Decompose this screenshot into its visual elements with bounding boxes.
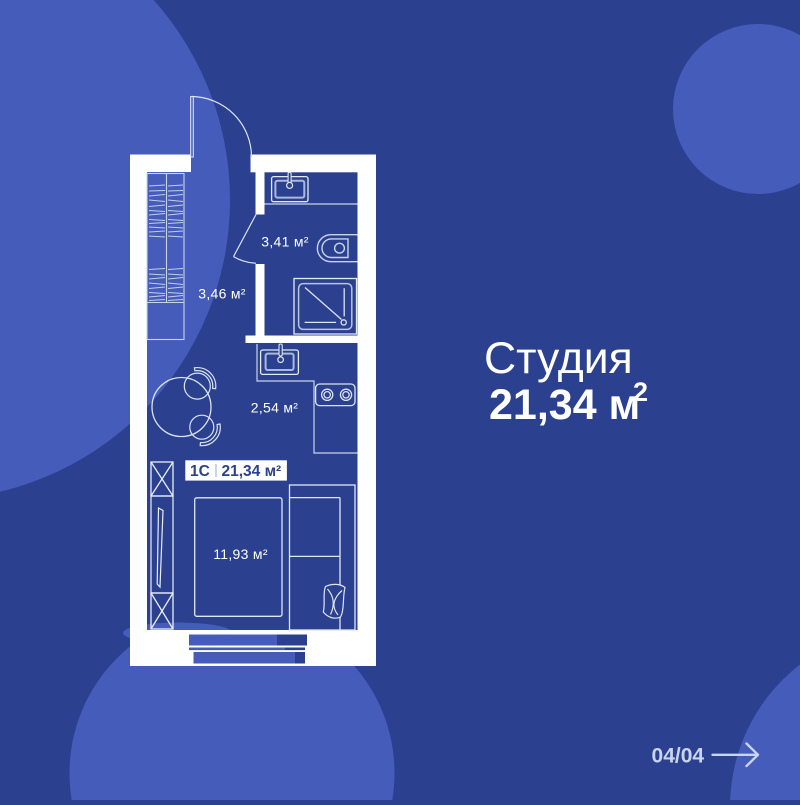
svg-text:04/04: 04/04 [652,745,705,768]
svg-text:3,41 м²: 3,41 м² [261,234,309,250]
svg-text:Студия: Студия [484,334,633,383]
svg-text:11,93 м²: 11,93 м² [213,546,268,562]
svg-text:2: 2 [633,377,648,407]
svg-text:21,34 м: 21,34 м [489,381,640,429]
svg-text:1C: 1C [190,463,210,480]
svg-text:2,54 м²: 2,54 м² [251,400,299,416]
svg-text:3,46 м²: 3,46 м² [198,286,246,302]
svg-text:21,34 м²: 21,34 м² [222,463,282,480]
